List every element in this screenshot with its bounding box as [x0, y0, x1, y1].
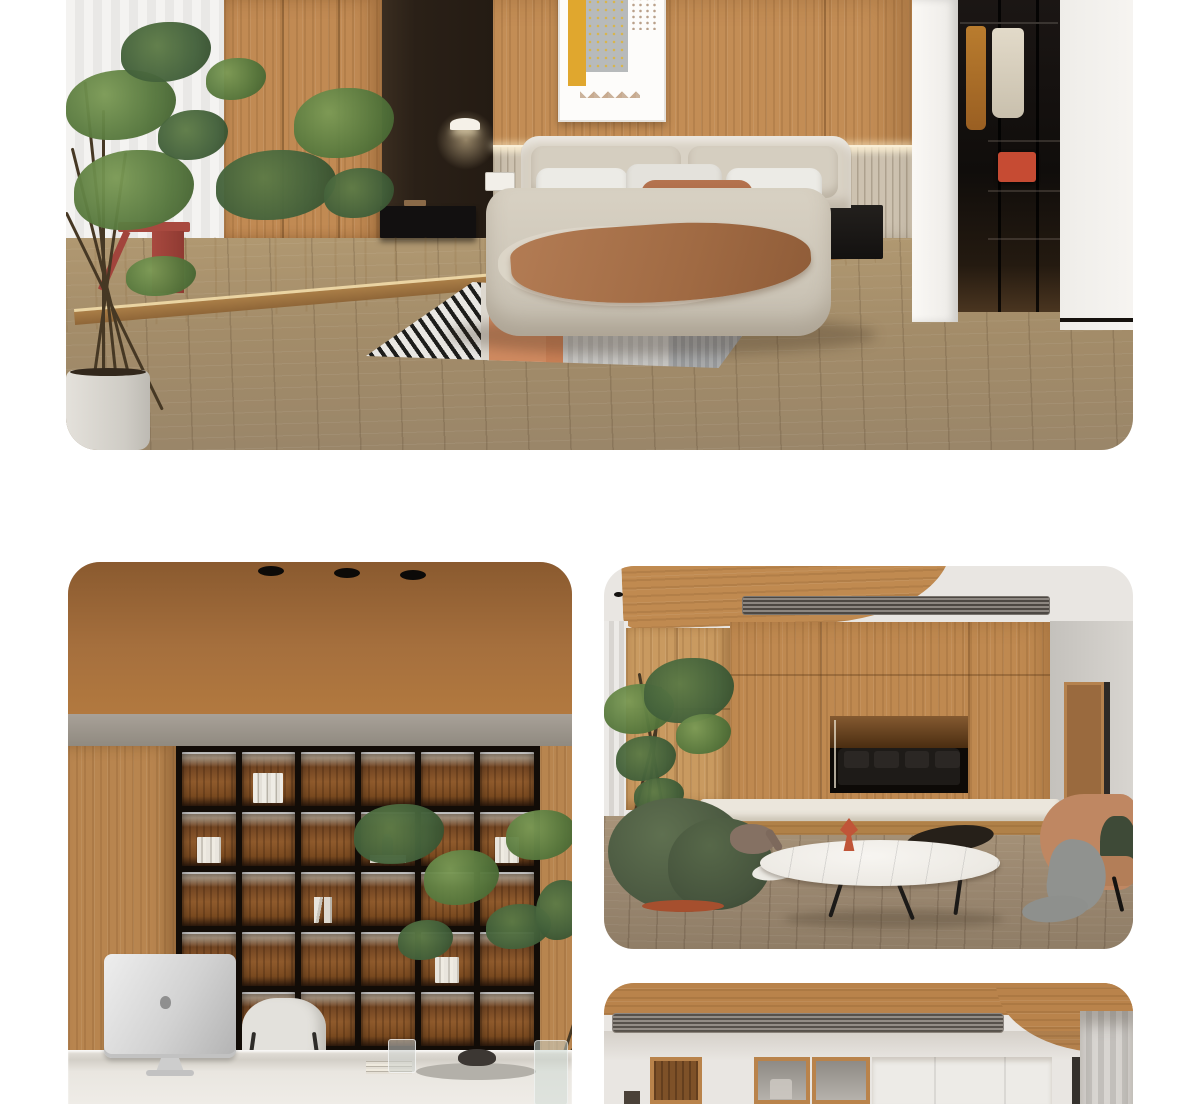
- shelf-cell: [361, 992, 415, 1046]
- shelf-cell: [182, 872, 236, 926]
- closet-shelf: [988, 140, 1060, 142]
- panel-seam: [968, 622, 970, 818]
- hanging-coat-amber: [966, 26, 986, 130]
- hanging-coat-white: [992, 28, 1024, 118]
- cabinet-seam: [934, 1057, 936, 1104]
- photo-living-room[interactable]: [604, 566, 1133, 949]
- shelf-cell: [242, 932, 296, 986]
- photo-bedroom[interactable]: [66, 0, 1133, 450]
- art-speckles: [630, 0, 658, 30]
- product-gallery-page: [0, 0, 1200, 1104]
- dark-window-sliver: [1072, 1057, 1080, 1104]
- shelf-cell: [361, 872, 415, 926]
- art-grid-pattern: [586, 0, 628, 72]
- teapot: [458, 1049, 496, 1066]
- shelf-cell: [301, 752, 355, 806]
- ceiling-spotlight: [400, 570, 426, 580]
- art-triangles: [580, 84, 640, 98]
- closet-rail: [960, 22, 1058, 24]
- shelf-cell: [301, 932, 355, 986]
- shelf-cell: [182, 752, 236, 806]
- photo-study[interactable]: [68, 562, 572, 1104]
- floating-nightstand: [380, 206, 476, 238]
- shelf-item-books-pair: [435, 957, 459, 983]
- wood-doorway: [650, 1057, 702, 1104]
- white-bench-ledge: [700, 799, 1060, 821]
- shelf-item-books-lean: [314, 897, 342, 923]
- glass-cup: [388, 1039, 416, 1073]
- shelf-cell: [421, 752, 475, 806]
- ceiling-spotlight: [258, 566, 284, 576]
- cabinet-seam: [1004, 1057, 1006, 1104]
- wall-art-frame: [558, 0, 666, 122]
- shelf-cell: [361, 752, 415, 806]
- shelf-cell: [242, 872, 296, 926]
- ac-linear-grille: [612, 1013, 1004, 1033]
- marble-coffee-table: [760, 840, 1000, 886]
- glass-vase: [534, 1040, 568, 1104]
- glass-display-cabinet: [812, 1057, 870, 1104]
- wood-ceiling: [68, 562, 572, 714]
- armchair-base-rim: [642, 900, 724, 912]
- shelf-cell: [242, 752, 296, 806]
- door-gap: [1104, 682, 1110, 810]
- shelf-cell: [301, 812, 355, 866]
- sheer-curtain: [1080, 1011, 1133, 1104]
- dark-wall-detail: [624, 1091, 640, 1104]
- walnut-door: [1064, 682, 1104, 810]
- baseboard: [1060, 318, 1133, 322]
- shelf-cell: [480, 992, 534, 1046]
- shelf-cell: [421, 992, 475, 1046]
- closet-frame: [1036, 0, 1039, 312]
- mushroom-wall-lamp: [450, 118, 480, 130]
- shelf-cell: [480, 752, 534, 806]
- foliage: [506, 810, 572, 860]
- photo-hallway-detail[interactable]: [604, 983, 1133, 1104]
- apple-logo: [160, 996, 171, 1009]
- red-handbag: [998, 152, 1036, 182]
- ceiling-spotlight: [614, 592, 623, 597]
- closet-shelf: [988, 238, 1060, 240]
- white-cabinet-run: [872, 1057, 1052, 1104]
- sofa-cushion: [935, 751, 960, 768]
- recessed-tv-niche: [830, 716, 968, 793]
- plant-soil: [70, 368, 146, 376]
- shelf-item-books-tall: [253, 773, 283, 803]
- shelf-cell: [182, 812, 236, 866]
- white-wall-pillar: [912, 0, 958, 322]
- art-yellow-bar: [568, 0, 586, 86]
- sofa-cushion: [874, 751, 899, 768]
- cabinet-item: [770, 1079, 792, 1099]
- panel-seam: [730, 674, 1060, 676]
- book-on-nightstand: [404, 200, 426, 206]
- white-wall-right: [1060, 0, 1133, 330]
- table-shadow: [784, 910, 1004, 928]
- gray-beam: [68, 714, 572, 746]
- shelf-item-books-pair: [197, 837, 221, 863]
- light-reflection: [834, 720, 836, 788]
- shelf-cell: [242, 812, 296, 866]
- shelf-cell: [301, 872, 355, 926]
- sofa-cushion: [844, 751, 869, 768]
- niche-wood-back: [830, 716, 968, 748]
- panel-seam: [820, 622, 822, 818]
- ac-linear-vent: [742, 596, 1050, 615]
- plant-pot: [66, 370, 150, 450]
- sofa-cushion: [905, 751, 930, 768]
- closet-shelf: [988, 190, 1060, 192]
- imac-base: [146, 1070, 194, 1076]
- ceiling-spotlight: [334, 568, 360, 578]
